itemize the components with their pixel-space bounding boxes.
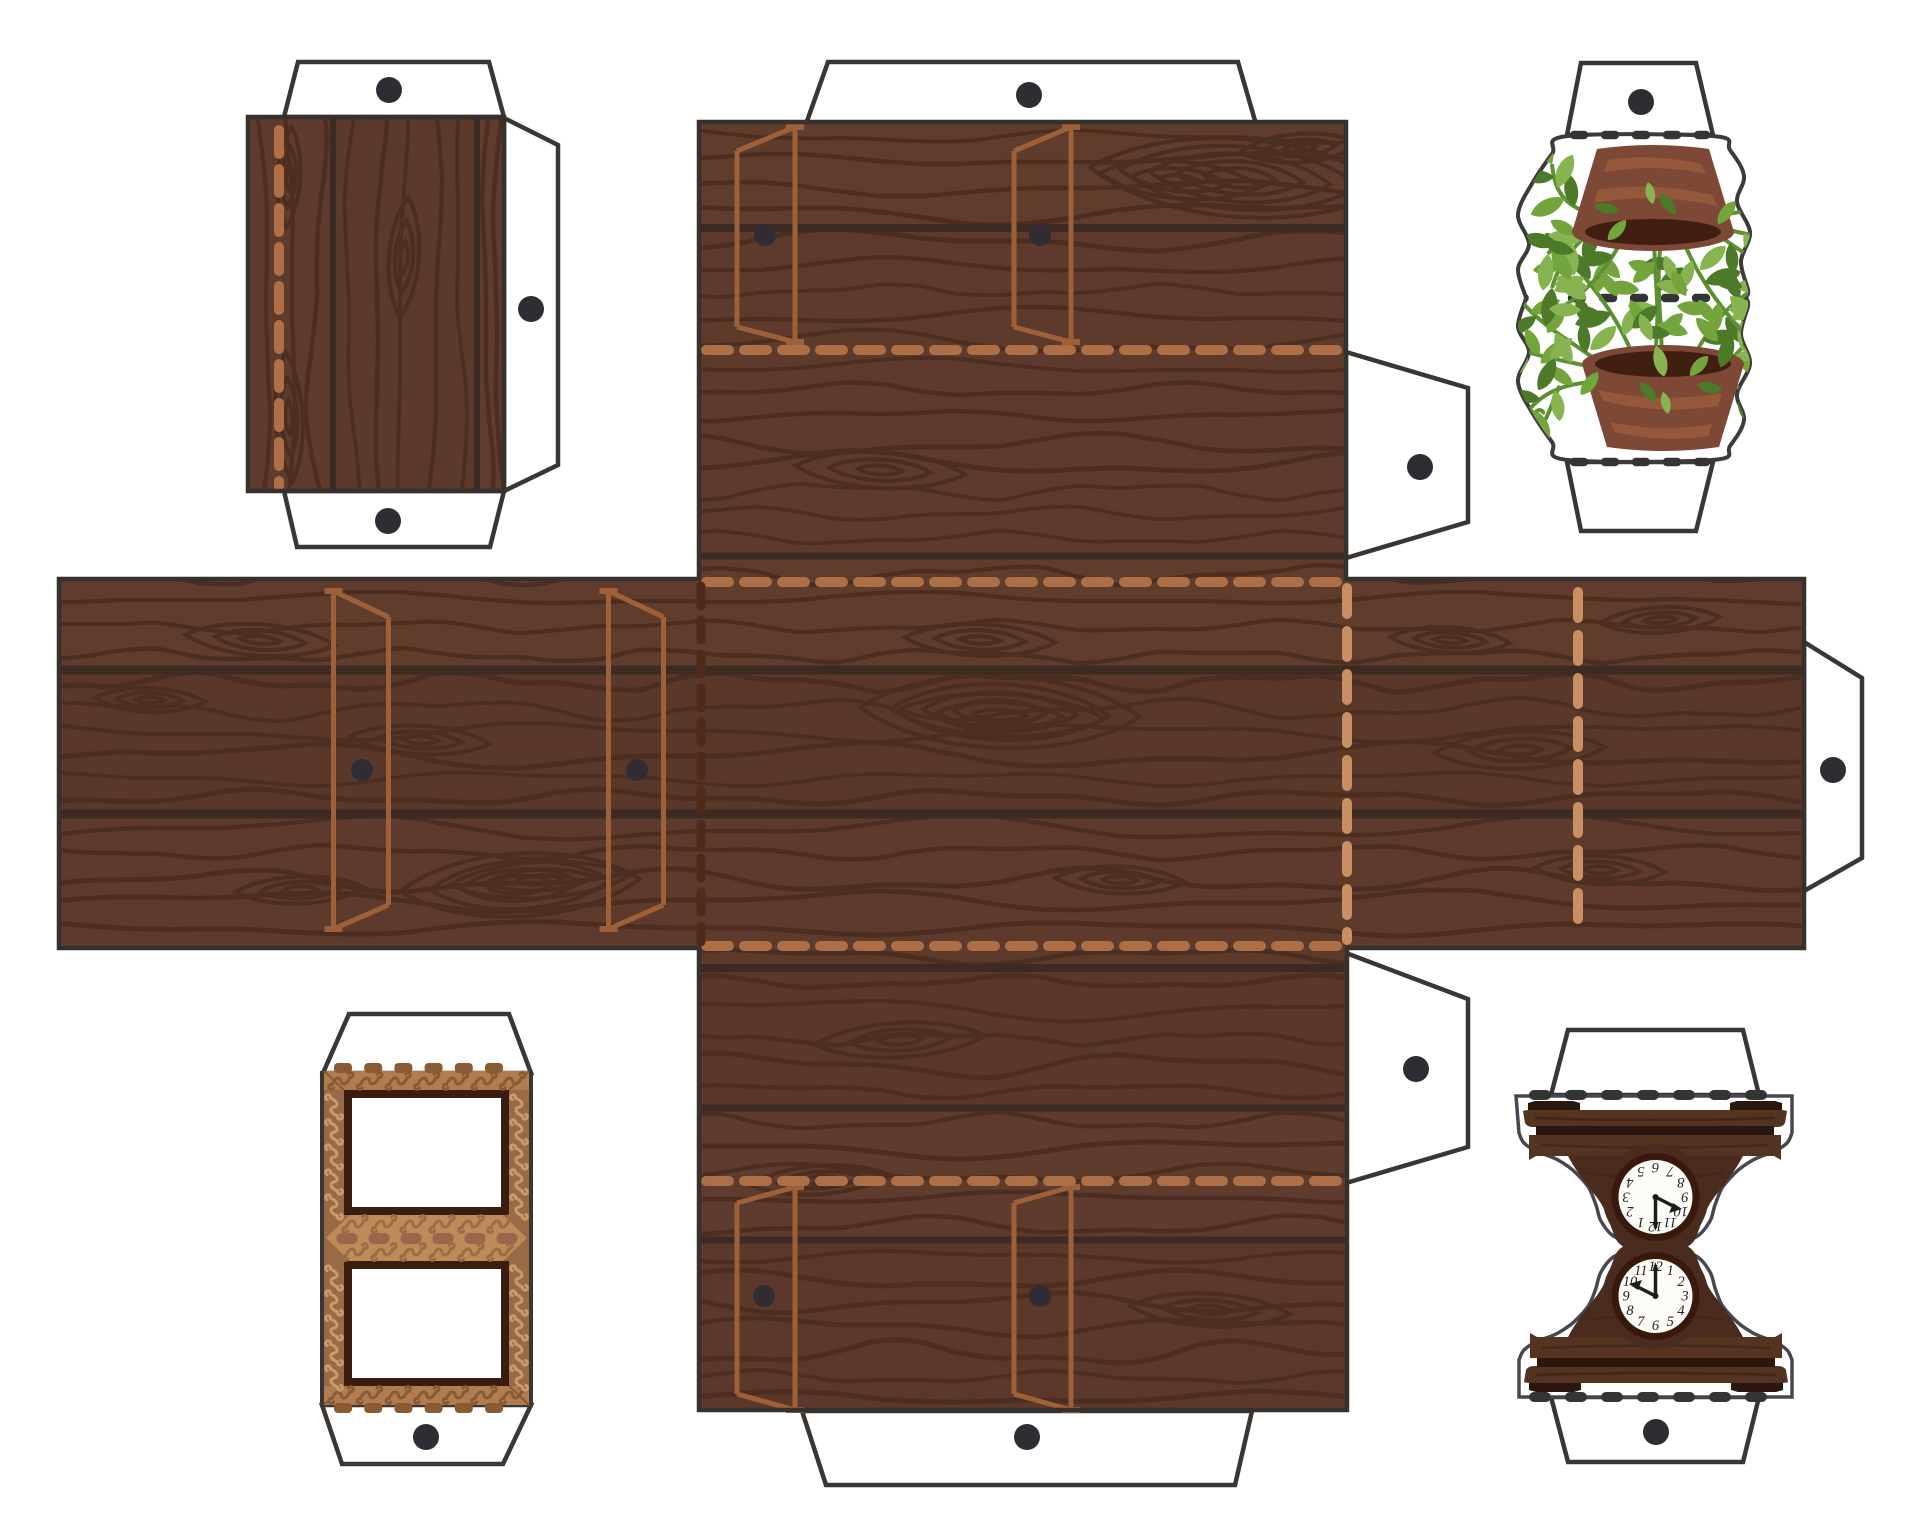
svg-text:8: 8 bbox=[1626, 1303, 1634, 1319]
svg-text:9: 9 bbox=[1622, 1289, 1630, 1305]
svg-text:3: 3 bbox=[1622, 1189, 1630, 1205]
svg-text:5: 5 bbox=[1667, 1314, 1674, 1330]
svg-text:4: 4 bbox=[1626, 1174, 1633, 1190]
svg-text:3: 3 bbox=[1680, 1289, 1688, 1305]
svg-text:7: 7 bbox=[1666, 1163, 1674, 1179]
svg-text:1: 1 bbox=[1637, 1214, 1644, 1230]
svg-text:4: 4 bbox=[1677, 1303, 1684, 1319]
svg-text:8: 8 bbox=[1677, 1174, 1685, 1190]
svg-text:11: 11 bbox=[1634, 1263, 1647, 1279]
svg-text:5: 5 bbox=[1637, 1163, 1644, 1179]
svg-text:11: 11 bbox=[1663, 1214, 1676, 1230]
svg-text:6: 6 bbox=[1652, 1318, 1660, 1334]
svg-text:1: 1 bbox=[1667, 1263, 1674, 1279]
svg-text:2: 2 bbox=[1677, 1274, 1684, 1290]
svg-text:9: 9 bbox=[1681, 1189, 1689, 1205]
svg-text:2: 2 bbox=[1626, 1203, 1633, 1219]
svg-text:6: 6 bbox=[1651, 1159, 1659, 1175]
svg-text:7: 7 bbox=[1637, 1314, 1645, 1330]
